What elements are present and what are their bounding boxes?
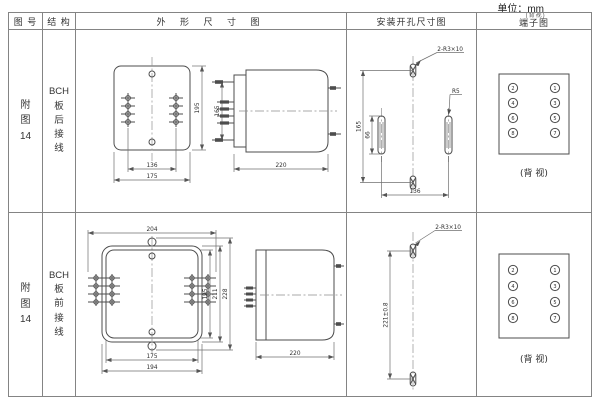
- slot-spec-label: 2-R3×10: [437, 47, 463, 53]
- dim-width-outer: 175: [146, 174, 157, 180]
- dim-height: 221±0.8: [384, 302, 390, 327]
- view-caption: (背 视): [520, 167, 548, 179]
- install-cell-row1: 2-R3×10 R5 165 66: [347, 30, 477, 213]
- radius-label: R5: [452, 89, 460, 95]
- terminal-number: 4: [511, 283, 514, 289]
- outline-cell-row1: 136 175 195 165: [76, 30, 347, 213]
- terminal-diagram-rear-wiring: 2 4 6 8 1 3 5 7 (背 视): [478, 30, 591, 212]
- terminal-number: 7: [553, 315, 556, 321]
- dim-width-inner: 136: [146, 163, 157, 169]
- terminal-diagram-front-wiring: 2 4 6 8 1 3 5 7 (背 视): [478, 214, 591, 396]
- dim-bottom-outer: 194: [146, 365, 157, 371]
- header-figure: 图 号: [9, 13, 43, 30]
- dim-depth: 220: [289, 351, 300, 357]
- outline-diagram-front-wiring: 204 195 211 228 175 194: [76, 214, 346, 396]
- terminal-block: 2 4 6 8 1 3 5 7: [499, 254, 569, 338]
- dim-h1: 195: [203, 288, 209, 299]
- structure-cell-row2: BCH 板 前 接 线: [43, 213, 76, 396]
- terminal-number: 2: [511, 86, 514, 92]
- figure-cell-row2: 附 图 14: [9, 213, 43, 396]
- terminal-number: 2: [511, 267, 514, 273]
- header-terminal: (背视) 端子图: [477, 13, 591, 30]
- header-terminal-note: (背视): [526, 13, 546, 19]
- hole-pattern: [378, 56, 452, 192]
- side-view-dimensions: 220: [234, 154, 328, 172]
- dim-width: 136: [409, 189, 420, 195]
- terminal-cell-row2: 2 4 6 8 1 3 5 7 (背 视): [477, 213, 591, 396]
- install-diagram-front-wiring: 2-R3×10 221±0.8: [347, 214, 476, 396]
- install-cell-row2: 2-R3×10 221±0.8: [347, 213, 477, 396]
- hole-labels: 2-R3×10: [414, 225, 462, 246]
- terminal-number: 5: [553, 299, 556, 305]
- hole-labels: 2-R3×10 R5: [415, 47, 465, 115]
- dim-bottom-inner: 175: [146, 354, 157, 360]
- side-view: [244, 250, 344, 340]
- dim-height: 195: [195, 102, 201, 113]
- front-view-dimensions: 136 175 195 165: [114, 66, 222, 183]
- dim-height: 165: [357, 121, 363, 132]
- terminal-number: 5: [553, 116, 556, 122]
- dim-h2: 211: [213, 288, 219, 299]
- terminal-number: 4: [511, 101, 514, 107]
- header-structure: 结 构: [43, 13, 76, 30]
- dim-slot: 66: [366, 131, 372, 139]
- terminal-number: 8: [511, 131, 514, 137]
- terminal-number: 6: [511, 299, 514, 305]
- dim-depth: 220: [275, 163, 286, 169]
- structure-cell-row1: BCH 板 后 接 线: [43, 30, 76, 213]
- install-diagram-rear-wiring: 2-R3×10 R5 165 66: [347, 30, 476, 212]
- header-outline: 外 形 尺 寸 图: [76, 13, 347, 30]
- slot-spec-label: 2-R3×10: [435, 225, 461, 231]
- side-view: [212, 70, 341, 152]
- hole-pattern: [410, 232, 416, 392]
- terminal-cell-row1: 2 4 6 8 1 3 5 7 (背 视): [477, 30, 591, 213]
- header-install: 安装开孔尺寸图: [347, 13, 477, 30]
- dim-h3: 228: [223, 288, 229, 299]
- terminal-block: 2 4 6 8 1 3 5 7: [499, 74, 569, 154]
- side-view-dimensions: 220: [256, 342, 334, 360]
- terminal-number: 3: [553, 101, 556, 107]
- terminal-number: 8: [511, 315, 514, 321]
- figure-cell-row1: 附 图 14: [9, 30, 43, 213]
- terminal-number: 3: [553, 283, 556, 289]
- outline-cell-row2: 204 195 211 228 175 194: [76, 213, 347, 396]
- front-view: [114, 57, 190, 161]
- dim-top: 204: [146, 227, 157, 233]
- spec-table: 图 号 结 构 外 形 尺 寸 图 安装开孔尺寸图 (背视) 端子图 附 图 1…: [8, 12, 592, 397]
- front-view-dimensions: 204 195 211 228 175 194: [88, 227, 233, 374]
- view-caption: (背 视): [520, 353, 548, 365]
- terminal-number: 1: [553, 267, 556, 273]
- outline-diagram-rear-wiring: 136 175 195 165: [76, 30, 346, 212]
- hole-dimensions: 221±0.8: [384, 251, 414, 379]
- catalog-page: 单位：mm 图 号 结 构 外 形 尺 寸 图 安装开孔尺寸图 (背视) 端子图…: [0, 0, 600, 400]
- terminal-number: 1: [553, 86, 556, 92]
- front-view: [88, 236, 216, 354]
- terminal-number: 6: [511, 116, 514, 122]
- terminal-number: 7: [553, 131, 556, 137]
- hole-dimensions: 165 66 136: [357, 71, 449, 199]
